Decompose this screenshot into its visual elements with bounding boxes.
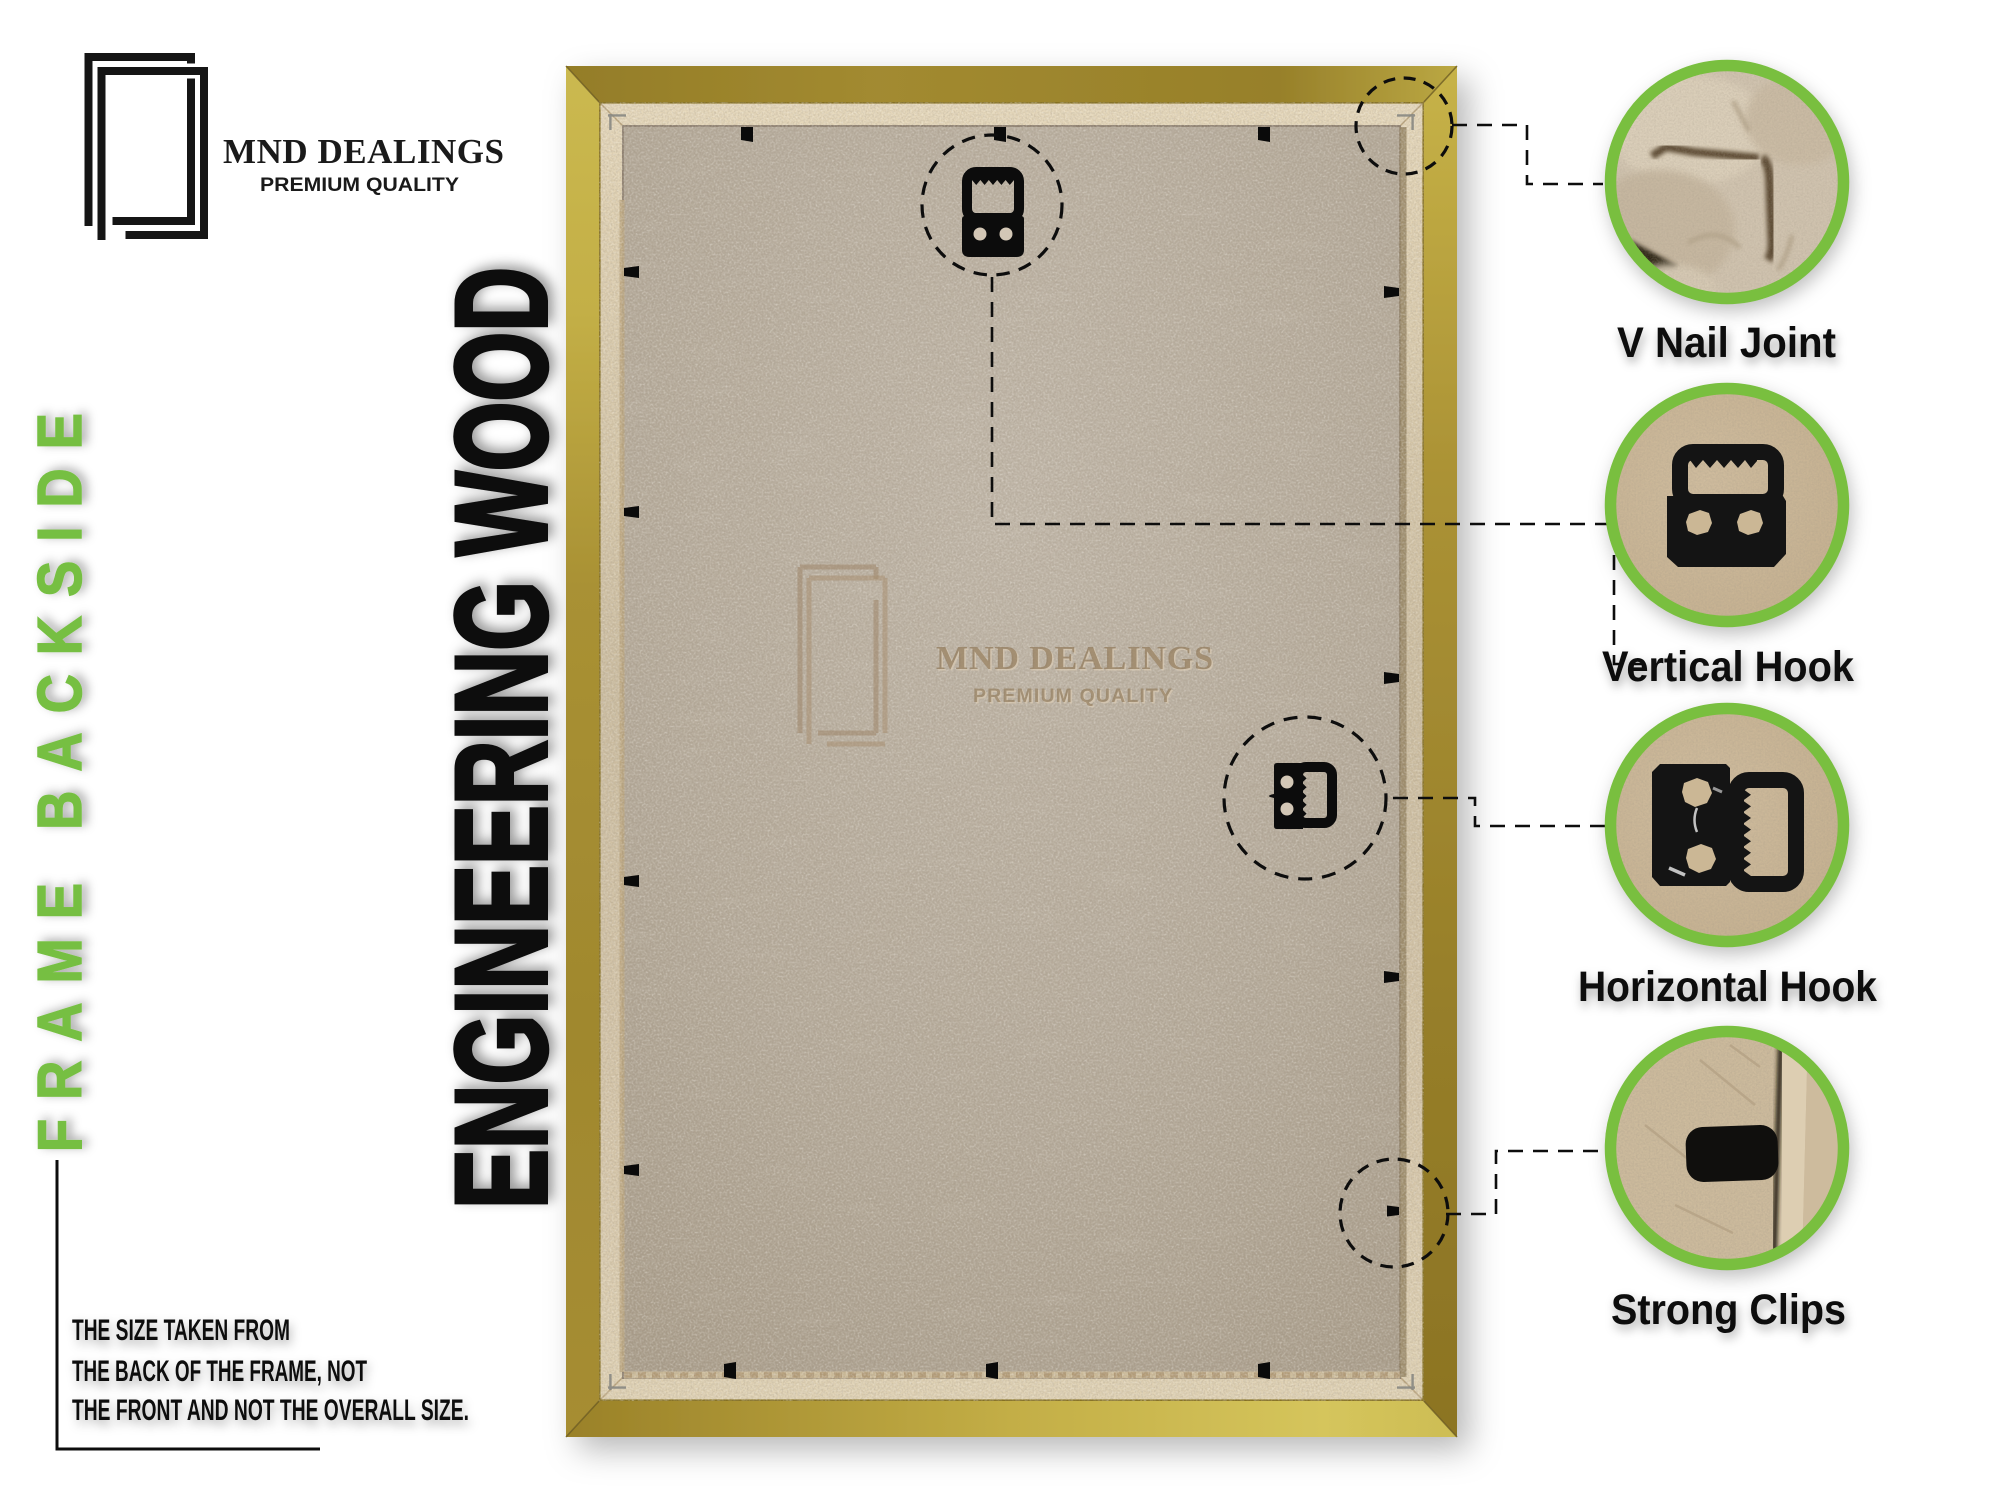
svg-text:Horizontal Hook: Horizontal Hook [1578,963,1877,1011]
svg-text:Vertical Hook: Vertical Hook [1602,643,1854,691]
svg-text:MND DEALINGS: MND DEALINGS [936,640,1213,677]
svg-text:FRAME BACKSIDE: FRAME BACKSIDE [26,394,95,1152]
svg-text:THE BACK OF THE FRAME, NOT: THE BACK OF THE FRAME, NOT [72,1355,367,1388]
svg-text:V Nail Joint: V Nail Joint [1617,319,1836,367]
svg-text:MND DEALINGS: MND DEALINGS [223,132,504,171]
svg-text:PREMIUM QUALITY: PREMIUM QUALITY [260,174,459,196]
svg-text:THE SIZE TAKEN FROM: THE SIZE TAKEN FROM [72,1314,290,1347]
svg-text:THE FRONT AND NOT THE OVERALL: THE FRONT AND NOT THE OVERALL SIZE. [72,1394,469,1427]
svg-text:PREMIUM QUALITY: PREMIUM QUALITY [973,685,1172,707]
svg-text:Strong Clips: Strong Clips [1611,1286,1846,1334]
svg-text:ENGINEERING WOOD: ENGINEERING WOOD [428,267,574,1209]
